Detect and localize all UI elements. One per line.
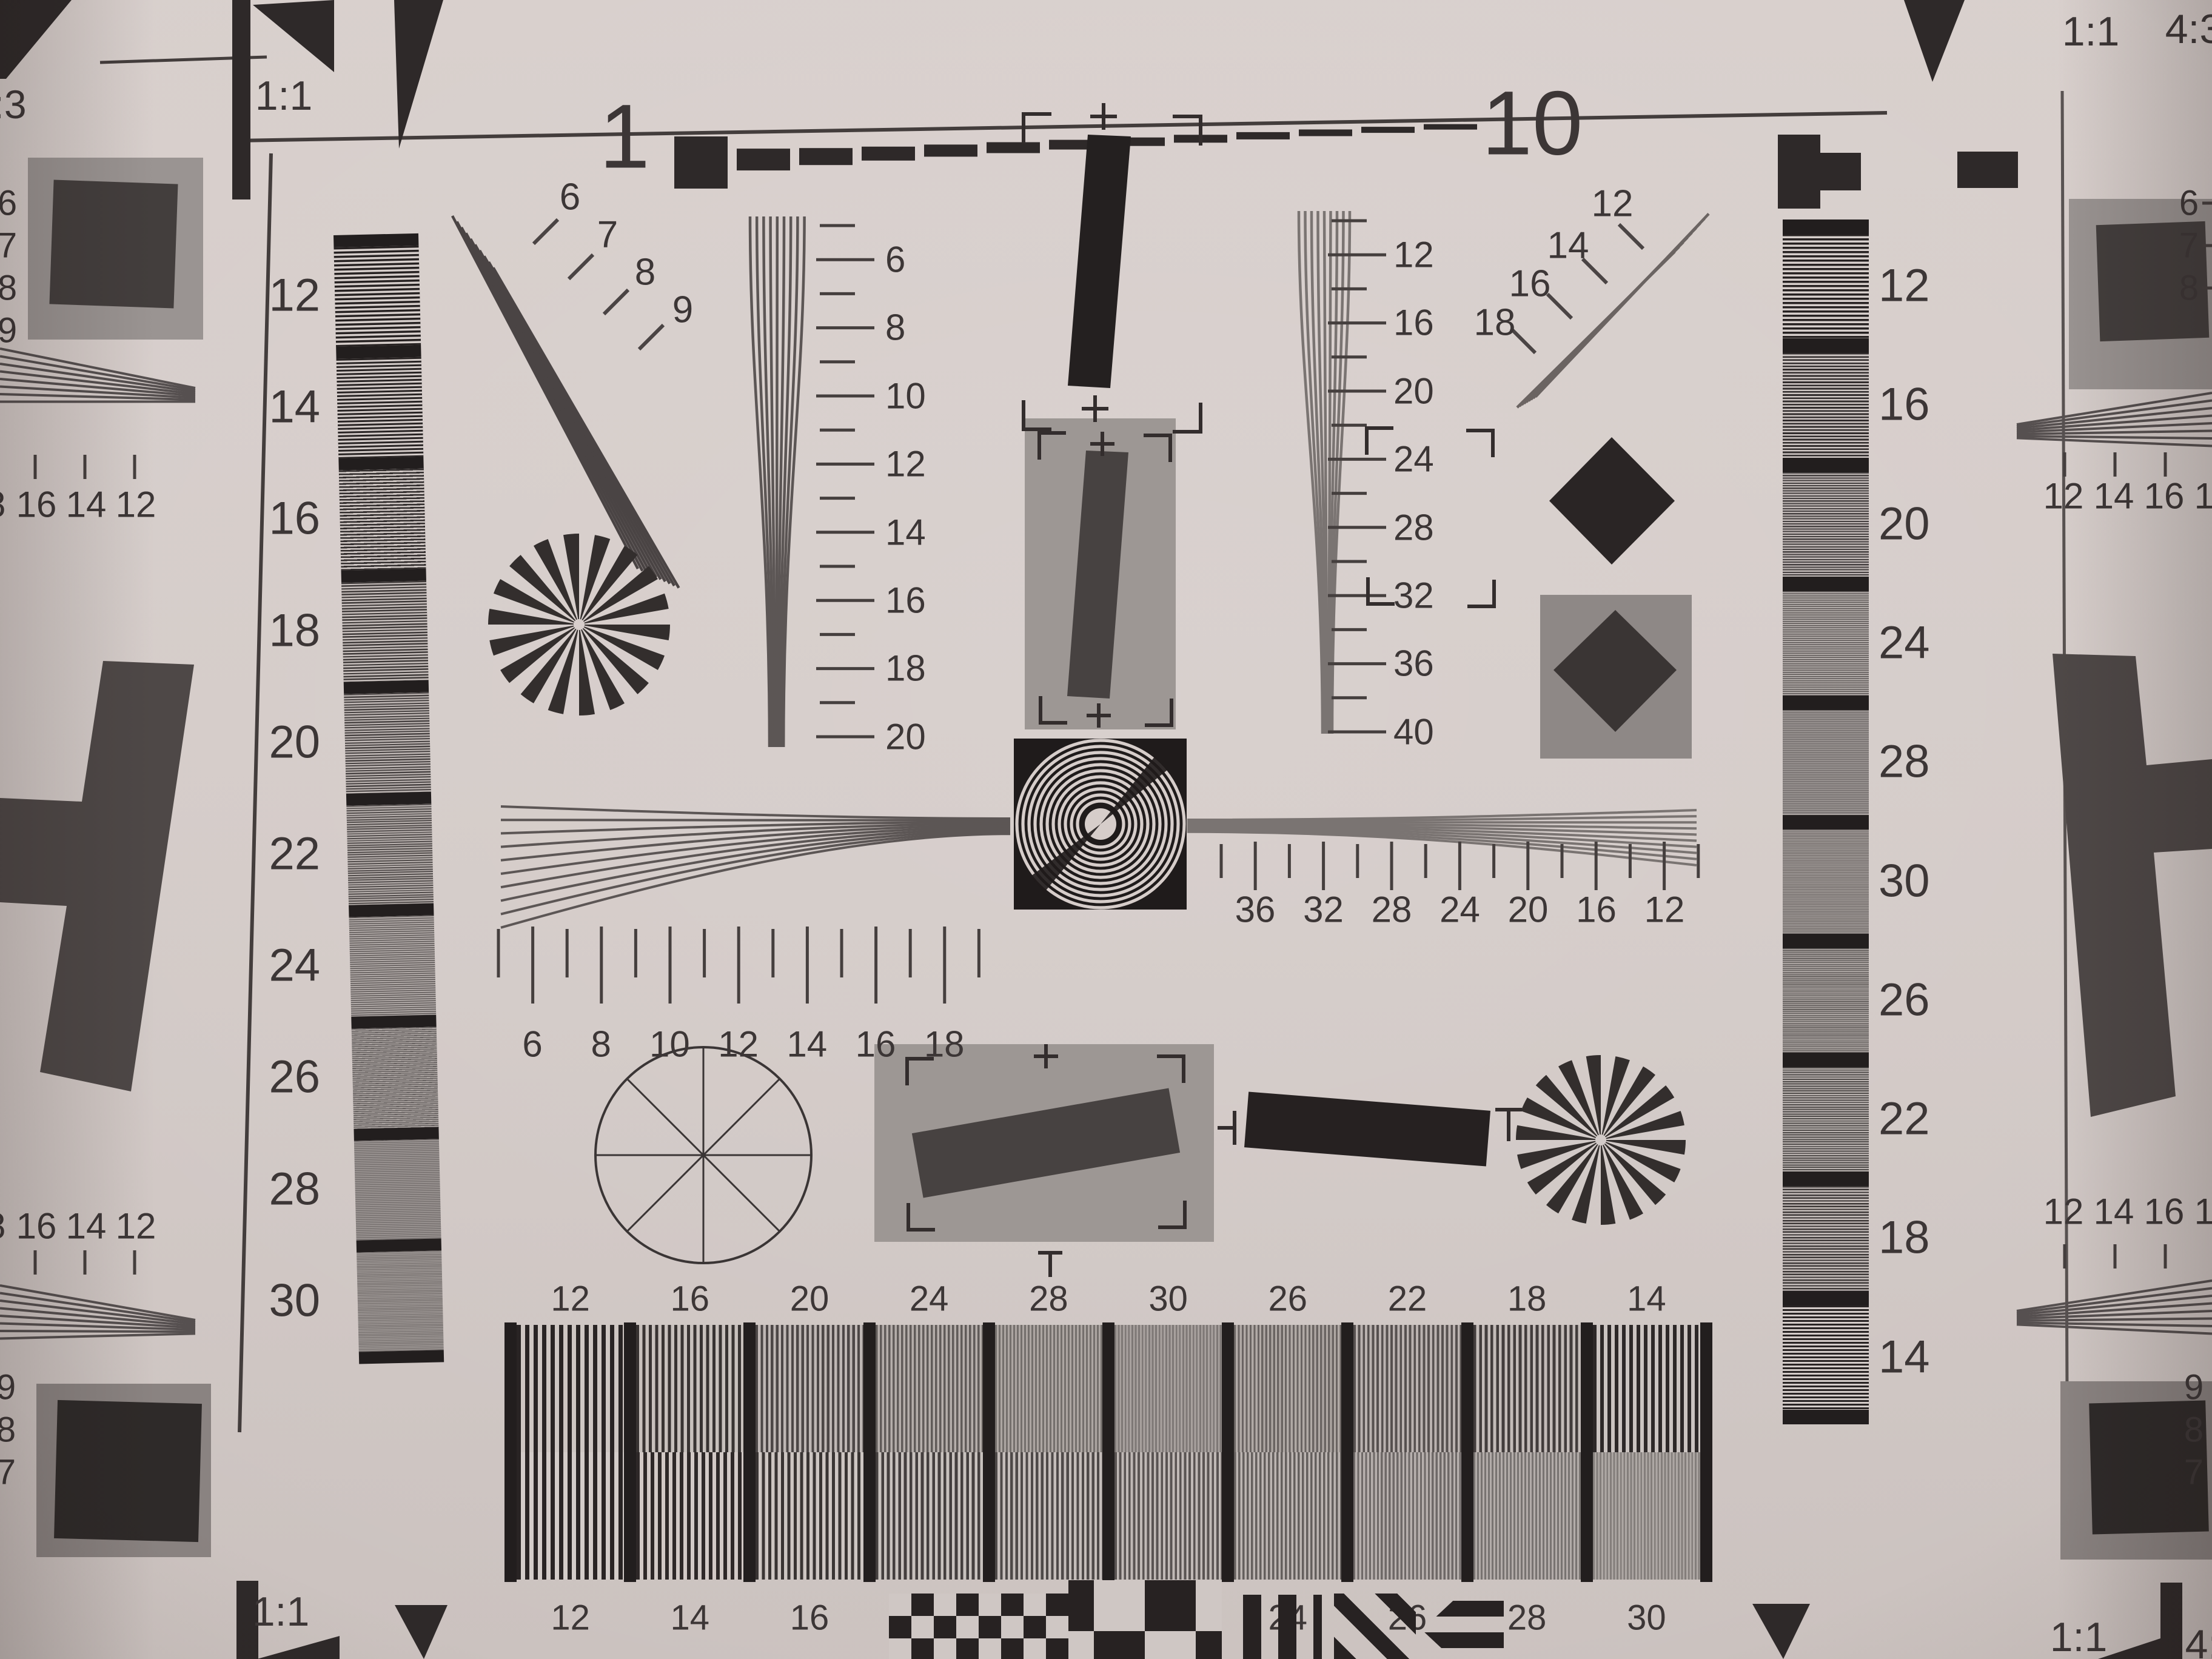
hscale-left-label: 12 (718, 1024, 759, 1065)
bottom-block-bottom-label: 30 (1627, 1598, 1666, 1638)
hscale-right-label: 28 (1372, 889, 1412, 931)
edge-number-bottom-left: 7 (0, 1452, 16, 1493)
film-leader-mark-a (1778, 135, 1820, 209)
bottom-block-cell-bottom (1234, 1452, 1341, 1580)
ruler-dash (674, 136, 728, 189)
bottom-block-cell-top (1473, 1325, 1581, 1452)
strip-right-label: 26 (1879, 973, 1930, 1026)
strip-pattern-segment (1783, 948, 1869, 1053)
strip-right-label: 16 (1879, 378, 1930, 431)
ruler-dash (1299, 130, 1352, 136)
slanted-bar-target-top (1068, 135, 1131, 388)
strip-right-label: 24 (1879, 616, 1930, 669)
edge-scale-label-bottom-right: 14 (2094, 1191, 2134, 1233)
strip-left-label: 12 (269, 269, 320, 322)
edge-scale-label-top-left: 16 (16, 484, 57, 526)
edge-number-top-left: 7 (0, 226, 17, 266)
fan-top-right-label: 12 (1592, 183, 1634, 226)
ruler-dash (924, 144, 977, 156)
bottom-block-cell-top (1114, 1325, 1222, 1452)
horizontal-wedge-right (1187, 810, 1698, 890)
fan-top-right-label: 18 (1474, 301, 1516, 344)
strip-left-label: 14 (269, 381, 320, 434)
edge-scale-label-bottom-right: 18 (2194, 1191, 2212, 1233)
bottom-block-top-label: 30 (1148, 1279, 1188, 1319)
down-triangle-top-right (1904, 0, 1965, 82)
fan-top-right-label: 16 (1509, 263, 1551, 306)
edge-scale-label-top-right: 16 (2144, 475, 2185, 517)
flag-triangle-top-left (253, 0, 334, 72)
strip-divider (1783, 1410, 1869, 1424)
flag-triangle-bottom-right (2098, 1638, 2160, 1659)
aspect-marker-top-left: :3 (0, 81, 27, 127)
ruler-end-number: 10 (1482, 71, 1583, 176)
fan-top-left-label: 7 (597, 213, 618, 256)
edge-number-bottom-right: 7 (2184, 1452, 2204, 1493)
ruler-dash (1361, 127, 1415, 133)
strip-pattern-segment (341, 580, 429, 682)
strip-pattern-segment (1783, 1186, 1869, 1290)
strip-divider (1783, 220, 1869, 234)
vertical-bars-pattern (1243, 1595, 1322, 1659)
flag-bar-bottom-right (2160, 1583, 2182, 1659)
strip-right-label: 18 (1879, 1212, 1930, 1264)
bottom-block-cell-bottom (756, 1452, 863, 1580)
edge-scale-label-top-left: 12 (116, 484, 156, 526)
bottom-block-top-label: 26 (1269, 1279, 1308, 1319)
strip-pattern-segment (344, 692, 431, 793)
edge-number-top-right: 6 (2179, 183, 2199, 224)
wedge-left-scale-label: 10 (885, 375, 926, 417)
strip-divider (1783, 338, 1869, 353)
edge-scale-label-top-left: 18 (0, 484, 5, 526)
strip-divider (1783, 458, 1869, 472)
strip-pattern-segment (1783, 591, 1869, 695)
strip-pattern-segment (1783, 234, 1869, 338)
film-leader-mark-c (1957, 152, 2018, 188)
concentric-circle-target (1014, 739, 1187, 910)
strip-right-label: 14 (1879, 1330, 1930, 1383)
strip-right-label: 30 (1879, 854, 1930, 907)
edge-scale-label-top-right: 14 (2094, 475, 2134, 517)
strip-left-label: 30 (269, 1274, 320, 1327)
bottom-block-cell-bottom (1353, 1452, 1461, 1580)
gray-square-target-1 (1025, 418, 1176, 729)
strip-pattern-segment (357, 1250, 444, 1352)
aspect-marker-top-right: 4:3 (2165, 5, 2212, 53)
wedge-left-scale-label: 8 (885, 307, 905, 349)
horizontal-wedge-left (498, 806, 1010, 1004)
hscale-right-label: 16 (1576, 889, 1617, 931)
strip-divider (1783, 1291, 1869, 1305)
strip-pattern-segment (1783, 1067, 1869, 1171)
bottom-block-cell-top (636, 1325, 743, 1452)
strip-pattern-segment (1783, 710, 1869, 814)
edge-scale-label-bottom-left: 18 (0, 1205, 5, 1247)
edge-number-top-left: 6 (0, 183, 17, 224)
bottom-block-top-label: 22 (1388, 1279, 1427, 1319)
hscale-left-label: 8 (591, 1024, 611, 1065)
bottom-block-top-label: 20 (790, 1279, 829, 1319)
down-triangle-bottom-left (395, 1605, 447, 1659)
ratio-marker-top-left: 1:1 (255, 72, 313, 119)
bottom-block-cell-bottom (995, 1452, 1102, 1580)
spoke-wheel-target (595, 1047, 811, 1263)
strip-pattern-segment (1783, 472, 1869, 577)
bottom-block-bottom-label: 12 (551, 1598, 590, 1638)
hscale-left-label: 6 (522, 1024, 542, 1065)
bottom-block-divider (743, 1322, 756, 1582)
edge-scale-label-bottom-right: 16 (2144, 1191, 2185, 1233)
strip-divider (1783, 815, 1869, 829)
strip-pattern-segment (1783, 353, 1869, 457)
bottom-block-divider (1700, 1322, 1712, 1582)
edge-number-top-left: 8 (0, 268, 17, 309)
strip-left-label: 22 (269, 828, 320, 880)
bottom-block-bottom-label: 14 (671, 1598, 710, 1638)
bottom-block-cell-top (756, 1325, 863, 1452)
bottom-block-cell-top (995, 1325, 1102, 1452)
fan-top-left-label: 6 (560, 176, 580, 219)
ruler-dash (737, 149, 790, 170)
bottom-block-divider (1102, 1322, 1114, 1582)
edge-number-top-left: 9 (0, 310, 17, 351)
strip-left-label: 20 (269, 716, 320, 768)
ruler-start-number: 1 (599, 84, 649, 189)
strip-pattern-segment (352, 1027, 439, 1128)
hscale-right-label: 32 (1303, 889, 1344, 931)
bottom-block-cell-bottom (517, 1452, 624, 1580)
wedge-right-scale-label: 28 (1393, 506, 1434, 548)
ruler-dash (1424, 124, 1477, 130)
corner-triangle-top-left (0, 0, 72, 79)
strip-pattern-segment (1783, 829, 1869, 934)
slanted-bar-target-bottom (1244, 1091, 1490, 1166)
wedge-left-scale-label: 14 (885, 511, 926, 553)
bottom-block-divider (1341, 1322, 1353, 1582)
gray-square-target-2 (874, 1044, 1214, 1242)
wedge-left-scale-label: 16 (885, 580, 926, 622)
bottom-block-divider (624, 1322, 636, 1582)
hscale-right-label: 36 (1235, 889, 1276, 931)
strip-right-label: 20 (1879, 497, 1930, 550)
edge-scale-label-bottom-right: 12 (2043, 1191, 2084, 1233)
ruler-dash (862, 147, 915, 161)
wedge-right-scale-label: 40 (1393, 711, 1434, 752)
diamond-targets (1540, 437, 1692, 759)
h-shape-right (2053, 654, 2212, 1117)
bottom-block-top-label: 14 (1627, 1279, 1666, 1319)
bottom-block-cell-bottom (876, 1452, 983, 1580)
wedge-right-scale-label: 36 (1393, 643, 1434, 685)
bottom-block-bottom-label: 16 (790, 1598, 829, 1638)
wedge-right-scale-label: 24 (1393, 438, 1434, 480)
strip-divider (1783, 577, 1869, 591)
edge-number-bottom-left: 9 (0, 1367, 16, 1408)
bottom-block-divider (1581, 1322, 1593, 1582)
edge-scale-label-bottom-left: 12 (116, 1205, 156, 1247)
edge-scale-label-top-left: 14 (66, 484, 107, 526)
edge-number-bottom-right: 9 (2184, 1367, 2204, 1408)
hscale-left-label: 16 (856, 1024, 896, 1065)
fan-top-left-label: 9 (672, 289, 693, 332)
edge-number-top-right: 7 (2179, 226, 2199, 266)
strip-left-label: 26 (269, 1051, 320, 1104)
bottom-block-cell-bottom (636, 1452, 743, 1580)
h-shape-left (0, 661, 194, 1091)
bottom-block-cell-top (876, 1325, 983, 1452)
diagonal-wedge-top-right (1511, 214, 1709, 407)
fan-top-left-label: 8 (635, 251, 655, 294)
down-triangle-bottom-right (1752, 1604, 1810, 1659)
strip-pattern-segment (339, 469, 426, 570)
bottom-block-cell-bottom (1593, 1452, 1700, 1580)
hscale-right-label: 20 (1508, 889, 1549, 931)
wedge-left-scale-label: 20 (885, 716, 926, 757)
hscale-right-label: 24 (1439, 889, 1480, 931)
strip-left-label: 28 (269, 1162, 320, 1215)
ruler-dash (799, 148, 853, 165)
edge-scale-label-bottom-left: 14 (66, 1205, 107, 1247)
down-triangle-top-left (394, 0, 443, 149)
strip-divider (1783, 1171, 1869, 1186)
vertical-wedge-left (750, 216, 874, 747)
bottom-block-divider (863, 1322, 876, 1582)
strip-divider (1783, 934, 1869, 948)
checkerboard-fine (889, 1594, 1068, 1659)
bottom-block-cell-top (1353, 1325, 1461, 1452)
hscale-left-label: 10 (649, 1024, 690, 1065)
top-ruler (674, 124, 1477, 189)
wedge-left-scale-label: 12 (885, 443, 926, 485)
wedge-left-scale-label: 6 (885, 239, 905, 281)
bottom-block-divider (1222, 1322, 1234, 1582)
checkerboard-coarse (1068, 1580, 1222, 1659)
vertical-wedge-right (1299, 211, 1386, 734)
ratio-marker-top-right: 1:1 (2062, 8, 2120, 55)
hscale-left-label: 14 (786, 1024, 827, 1065)
edge-scale-label-bottom-left: 16 (16, 1205, 57, 1247)
ruler-dash (1236, 132, 1290, 139)
strip-divider (1783, 1053, 1869, 1067)
strip-pattern-segment (333, 246, 421, 347)
edge-number-bottom-right: 8 (2184, 1410, 2204, 1450)
edge-number-top-right: 8 (2179, 268, 2199, 309)
bottom-block-cell-bottom (1114, 1452, 1222, 1580)
strip-pattern-segment (337, 357, 424, 458)
bottom-block-top-label: 18 (1507, 1279, 1547, 1319)
bottom-block-cell-top (1593, 1325, 1700, 1452)
bottom-block-bottom-label: 28 (1507, 1598, 1547, 1638)
strip-pattern-segment (354, 1139, 441, 1240)
strip-divider (1783, 695, 1869, 710)
film-leader-mark-b (1818, 153, 1861, 190)
hscale-right-label: 12 (1644, 889, 1685, 931)
bottom-block-divider (983, 1322, 995, 1582)
aspect-marker-bottom-right: 4: (2185, 1621, 2212, 1659)
strip-right-label: 12 (1879, 260, 1930, 312)
edge-number-bottom-left: 8 (0, 1410, 16, 1450)
siemens-star-right (1516, 1055, 1686, 1225)
edge-scale-label-top-right: 12 (2043, 475, 2084, 517)
strip-left-label: 24 (269, 939, 320, 992)
strip-left-label: 18 (269, 604, 320, 657)
strip-pattern-segment (1783, 1305, 1869, 1410)
wedge-right-scale-label: 32 (1393, 575, 1434, 617)
wedge-left-scale-label: 18 (885, 648, 926, 689)
bottom-block-cell-bottom (1473, 1452, 1581, 1580)
flag-bar-top-left (232, 0, 250, 199)
bottom-block-cell-top (517, 1325, 624, 1452)
bottom-block-top-label: 16 (671, 1279, 710, 1319)
strip-right-label: 28 (1879, 736, 1930, 788)
diagonal-bars-pattern (1334, 1594, 1416, 1659)
strip-right-label: 22 (1879, 1093, 1930, 1145)
wedge-right-scale-label: 20 (1393, 370, 1434, 412)
bottom-block-top-label: 24 (910, 1279, 949, 1319)
bottom-block-top-label: 28 (1029, 1279, 1068, 1319)
strip-divider (359, 1350, 444, 1364)
bottom-block-divider (504, 1322, 517, 1582)
bottom-block-cell-top (1234, 1325, 1341, 1452)
resolution-test-chart-photo: 6789121416186810121416182012162024283236… (0, 0, 2212, 1659)
bottom-block-top-label: 12 (551, 1279, 590, 1319)
ratio-marker-bottom-left: 1:1 (252, 1588, 310, 1635)
flag-triangle-bottom-left (257, 1636, 340, 1659)
film-strip-right (1783, 220, 1869, 1424)
strip-left-label: 16 (269, 492, 320, 545)
fan-top-right-label: 14 (1547, 224, 1589, 267)
ratio-marker-bottom-right: 1:1 (2050, 1614, 2108, 1659)
strip-pattern-segment (346, 804, 434, 905)
edge-scale-label-top-right: 18 (2194, 475, 2212, 517)
ruler-dash (987, 142, 1040, 153)
hscale-left-label: 18 (924, 1024, 965, 1065)
wedge-right-scale-label: 16 (1393, 302, 1434, 344)
strip-pattern-segment (349, 916, 437, 1017)
bottom-block-divider (1461, 1322, 1473, 1582)
wedge-right-scale-label: 12 (1393, 234, 1434, 276)
black-diamond (1549, 437, 1675, 565)
